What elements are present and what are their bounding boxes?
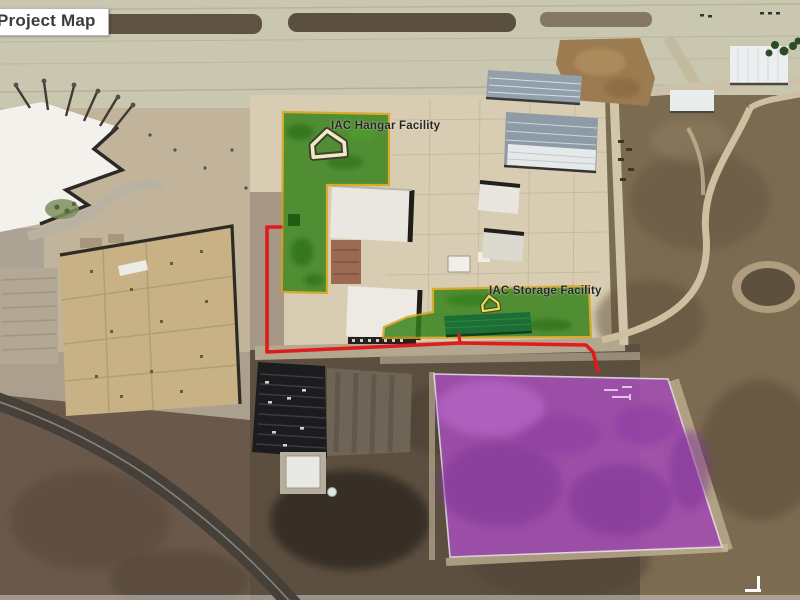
map-title-badge: Project Map [0, 8, 109, 36]
project-map-screenshot: Project Map IAC Hangar Facility IAC Stor… [0, 0, 800, 600]
storage-facility-label: IAC Storage Facility [489, 285, 602, 297]
map-title: Project Map [0, 11, 96, 30]
aerial-map[interactable] [0, 0, 800, 600]
hangar-facility-label: IAC Hangar Facility [331, 120, 440, 132]
